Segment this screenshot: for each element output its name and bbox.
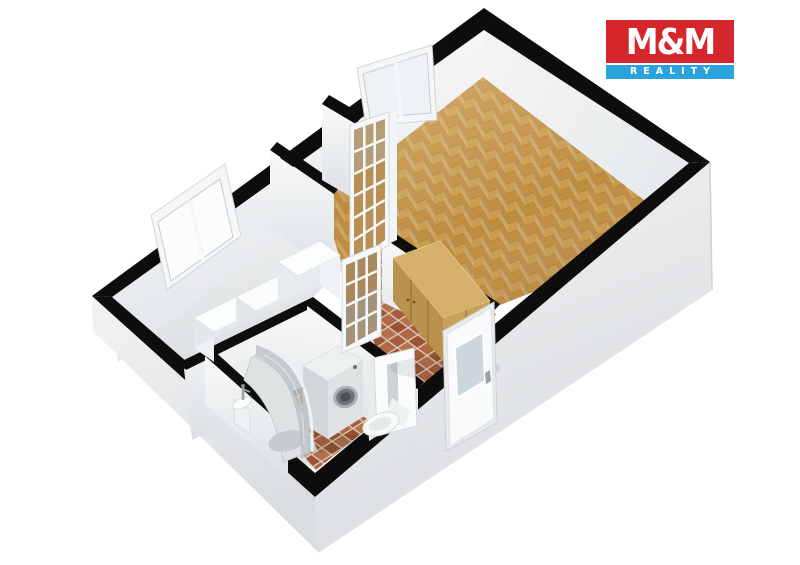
logo-tagline: REALITY [624, 67, 716, 77]
washer-detergent-drawer [353, 365, 357, 369]
floor-plan-render: M&M REALITY [0, 0, 800, 565]
faucet-head [241, 384, 245, 388]
wardrobe-knob [407, 299, 410, 302]
logo-bar: REALITY [606, 65, 734, 79]
logo-badge: M&M [606, 20, 734, 63]
floor-plan-svg [0, 0, 800, 565]
brand-logo: M&M REALITY [606, 20, 734, 79]
wardrobe-knob [413, 301, 416, 304]
logo-brand-name: M&M [626, 24, 714, 60]
